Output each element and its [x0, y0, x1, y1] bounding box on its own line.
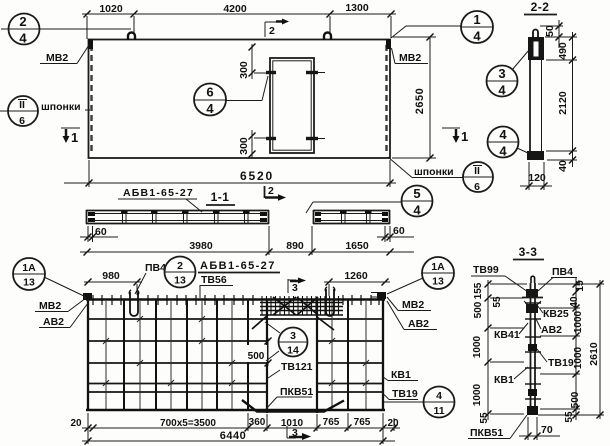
svg-text:3980: 3980 [189, 240, 213, 252]
svg-text:2: 2 [19, 14, 26, 29]
svg-text:300: 300 [238, 137, 250, 155]
svg-text:890: 890 [286, 240, 304, 252]
svg-text:6440: 6440 [220, 430, 246, 442]
svg-text:МВ2: МВ2 [39, 300, 61, 312]
svg-text:4200: 4200 [223, 3, 247, 15]
svg-text:14: 14 [287, 345, 299, 357]
svg-text:шпонки: шпонки [41, 101, 81, 113]
svg-text:3: 3 [292, 282, 298, 294]
svg-text:3: 3 [498, 66, 505, 81]
svg-text:4: 4 [413, 203, 421, 218]
svg-text:13: 13 [23, 277, 35, 289]
svg-text:6: 6 [206, 85, 213, 100]
svg-text:ТВ121: ТВ121 [281, 361, 313, 373]
svg-text:120: 120 [528, 172, 546, 184]
svg-text:ПВ4: ПВ4 [552, 266, 573, 278]
svg-text:II: II [19, 99, 25, 111]
svg-text:1-1: 1-1 [211, 190, 230, 204]
svg-text:700х5=3500: 700х5=3500 [160, 418, 216, 429]
svg-text:70: 70 [541, 424, 553, 436]
svg-text:60: 60 [95, 226, 107, 238]
svg-text:ПКВ51: ПКВ51 [470, 427, 503, 439]
svg-text:50: 50 [544, 25, 556, 37]
svg-text:765: 765 [323, 417, 340, 428]
svg-text:2-2: 2-2 [531, 0, 550, 14]
svg-text:6520: 6520 [240, 169, 274, 183]
svg-text:5: 5 [413, 186, 420, 201]
svg-text:11: 11 [433, 405, 444, 417]
svg-text:500: 500 [248, 351, 265, 362]
svg-text:4: 4 [499, 127, 507, 142]
svg-text:4: 4 [473, 29, 481, 44]
svg-text:765: 765 [354, 417, 371, 428]
svg-text:55: 55 [479, 412, 490, 424]
svg-text:ПВ4: ПВ4 [145, 262, 166, 274]
svg-text:55: 55 [564, 411, 575, 423]
svg-text:2: 2 [268, 185, 274, 197]
svg-text:1: 1 [71, 130, 78, 145]
svg-text:1: 1 [473, 12, 480, 27]
svg-text:6: 6 [19, 115, 25, 127]
svg-text:АВ2: АВ2 [43, 316, 64, 328]
svg-text:2610: 2610 [588, 342, 600, 366]
svg-text:1650: 1650 [345, 240, 369, 252]
svg-text:155: 155 [473, 282, 484, 299]
svg-text:1020: 1020 [99, 3, 123, 15]
svg-text:2: 2 [177, 260, 183, 272]
svg-text:3: 3 [292, 427, 298, 439]
svg-text:360: 360 [249, 417, 266, 428]
svg-text:КВ25: КВ25 [543, 308, 569, 320]
svg-text:1260: 1260 [344, 270, 368, 282]
svg-text:490: 490 [557, 42, 569, 60]
svg-text:980: 980 [102, 270, 120, 282]
svg-text:КВ1: КВ1 [494, 374, 514, 386]
svg-text:2650: 2650 [414, 88, 426, 114]
svg-text:300: 300 [238, 61, 250, 79]
svg-text:40: 40 [557, 160, 569, 172]
svg-text:4: 4 [499, 144, 507, 159]
svg-text:ТВ19: ТВ19 [392, 388, 418, 400]
svg-text:АБВ1-65-27: АБВ1-65-27 [200, 260, 276, 272]
svg-text:55: 55 [492, 296, 503, 308]
svg-text:15: 15 [575, 280, 586, 292]
svg-text:1000: 1000 [573, 346, 584, 369]
svg-text:1000: 1000 [472, 335, 483, 358]
svg-text:1000: 1000 [472, 383, 483, 406]
svg-text:АВ2: АВ2 [408, 318, 429, 330]
svg-text:шпонки: шпонки [414, 166, 454, 178]
svg-text:2: 2 [269, 25, 275, 37]
svg-text:МВ2: МВ2 [399, 52, 421, 64]
svg-text:АБВ1-65-27: АБВ1-65-27 [123, 187, 194, 199]
svg-text:АВ2: АВ2 [541, 324, 562, 336]
svg-text:20: 20 [387, 418, 399, 429]
svg-text:КВ41: КВ41 [494, 329, 520, 341]
svg-text:4: 4 [19, 31, 27, 46]
svg-text:КВ1: КВ1 [391, 369, 411, 381]
svg-text:4: 4 [436, 390, 442, 402]
svg-text:2120: 2120 [557, 91, 569, 115]
svg-text:1А: 1А [22, 262, 36, 274]
svg-text:ТВ19: ТВ19 [548, 357, 574, 369]
svg-text:4: 4 [498, 83, 506, 98]
svg-text:ПКВ51: ПКВ51 [280, 386, 313, 398]
svg-text:13: 13 [432, 276, 444, 288]
svg-text:1А: 1А [431, 261, 445, 273]
svg-text:500: 500 [570, 391, 581, 408]
svg-text:1: 1 [461, 129, 468, 144]
svg-text:500: 500 [473, 301, 484, 318]
svg-text:4: 4 [206, 101, 214, 116]
svg-text:40: 40 [569, 296, 580, 308]
svg-text:20: 20 [70, 418, 82, 429]
svg-text:60: 60 [393, 225, 405, 237]
svg-text:1000: 1000 [573, 310, 584, 333]
svg-text:МВ2: МВ2 [402, 299, 424, 311]
svg-text:II: II [474, 165, 480, 177]
svg-text:МВ2: МВ2 [46, 52, 68, 64]
svg-text:3: 3 [290, 330, 296, 342]
svg-text:1300: 1300 [345, 2, 369, 14]
svg-text:ТВ99: ТВ99 [473, 264, 499, 276]
svg-text:6: 6 [474, 181, 480, 193]
svg-text:3-3: 3-3 [519, 245, 538, 259]
svg-text:13: 13 [174, 275, 186, 287]
svg-text:ТВ56: ТВ56 [201, 274, 227, 286]
